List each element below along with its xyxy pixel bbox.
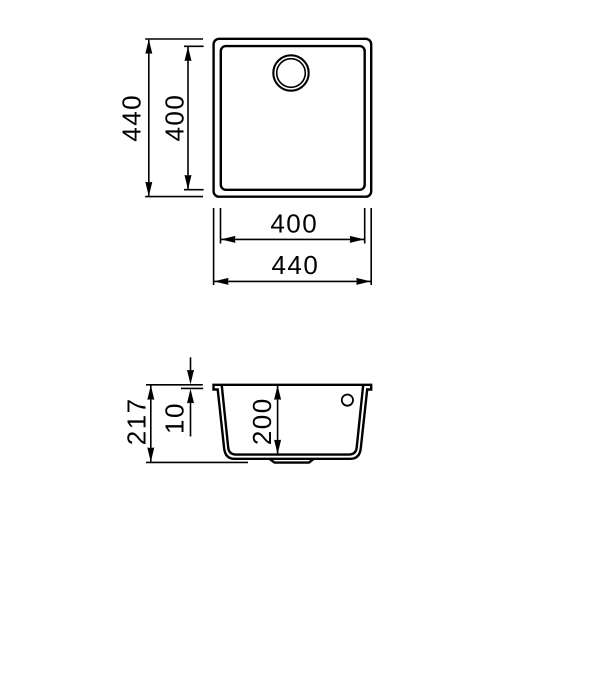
svg-text:217: 217: [121, 397, 151, 445]
svg-text:400: 400: [159, 94, 189, 142]
svg-text:200: 200: [247, 397, 277, 445]
svg-text:400: 400: [270, 209, 318, 239]
svg-text:440: 440: [117, 94, 147, 142]
svg-text:440: 440: [271, 250, 319, 280]
svg-text:10: 10: [160, 402, 190, 434]
